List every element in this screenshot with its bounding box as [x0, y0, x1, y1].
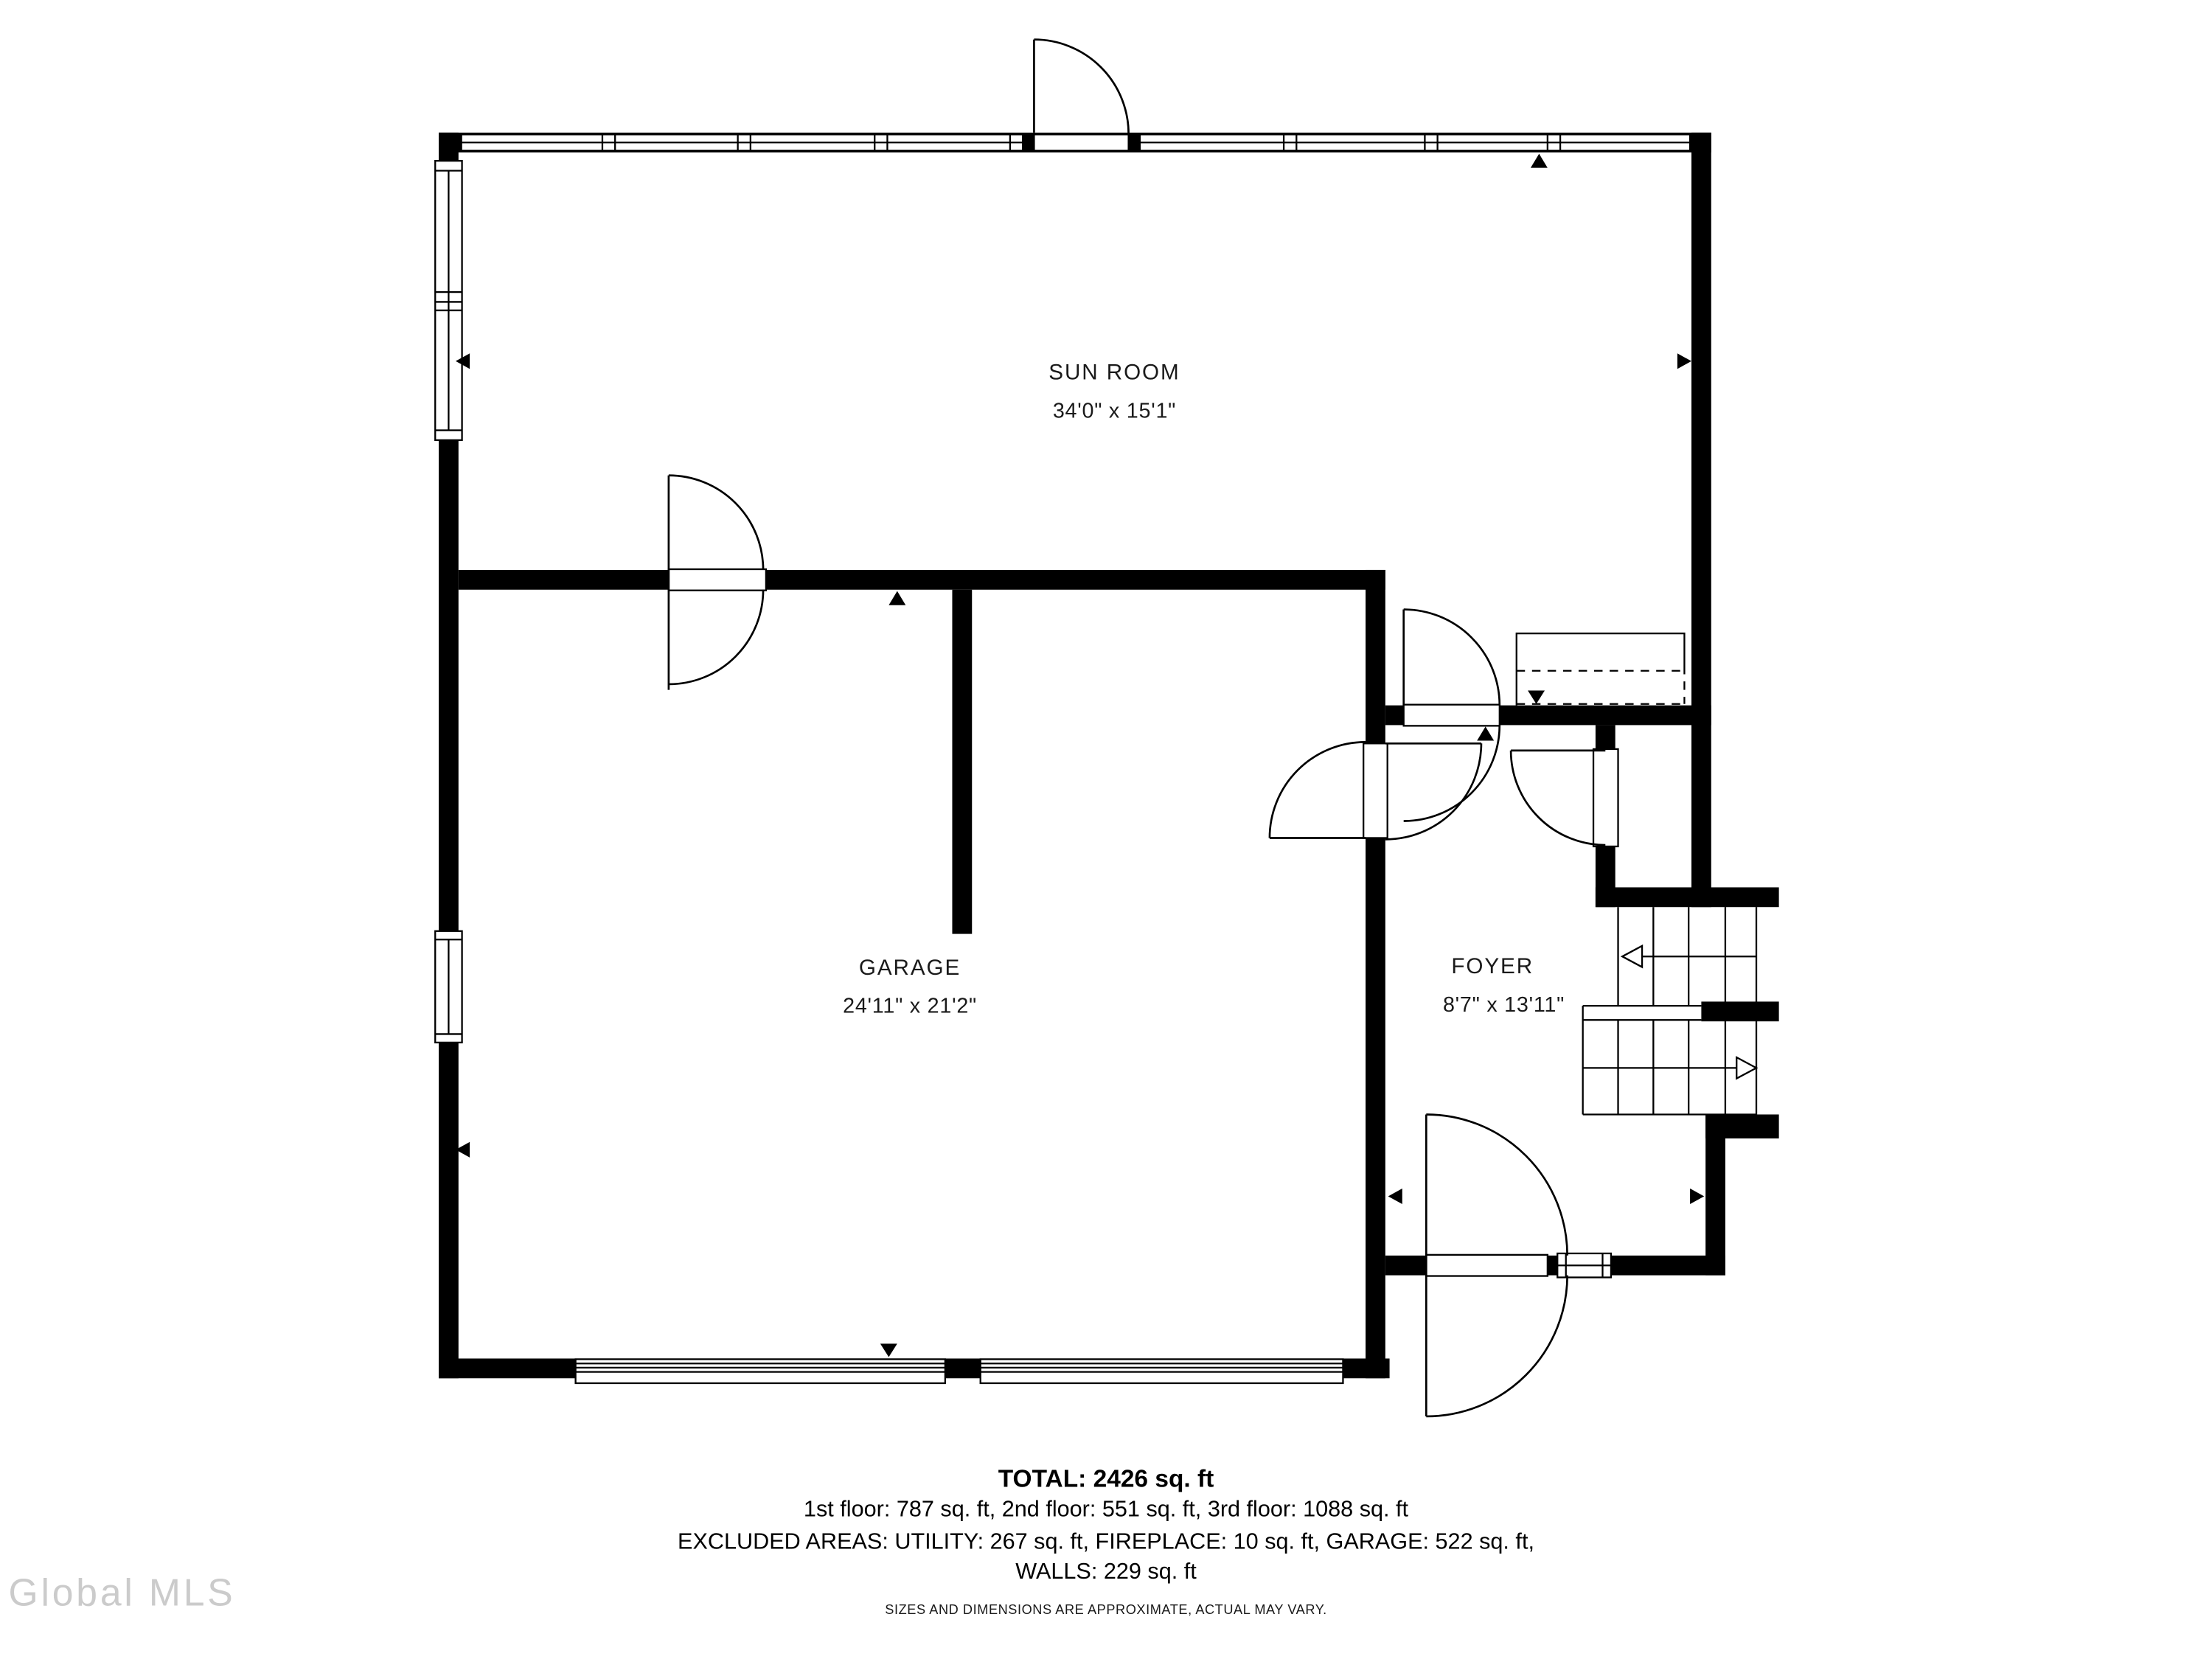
summary-walls-text: WALLS: 229 sq. ft	[1015, 1559, 1197, 1584]
wall-closet-bottom	[1596, 887, 1779, 907]
door-threshold-closet	[1593, 749, 1618, 846]
wall-foyer-right	[1705, 1114, 1725, 1275]
door-threshold-garage-foyer	[1363, 743, 1388, 838]
floor-plan-page: SUN ROOM 34'0" x 15'1" GARAGE 24'11" x 2…	[0, 0, 2212, 1659]
summary-floors-text: 1st floor: 787 sq. ft, 2nd floor: 551 sq…	[804, 1497, 1409, 1522]
garage-door-1	[576, 1359, 945, 1383]
window-band-top-right	[1140, 134, 1690, 151]
wall-sunroom-right	[1691, 133, 1711, 907]
canvas-background	[0, 0, 2212, 1659]
window-band-top-left	[462, 134, 1023, 151]
summary-total-text: TOTAL: 2426 sq. ft	[998, 1466, 1214, 1493]
summary-excluded-text: EXCLUDED AREAS: UTILITY: 267 sq. ft, FIR…	[678, 1529, 1534, 1554]
room-label-sunroom: SUN ROOM	[1048, 361, 1180, 385]
door-threshold-top	[1034, 134, 1128, 150]
door-threshold-sunroom-garage	[669, 569, 766, 591]
floor-plan-drawing: SUN ROOM 34'0" x 15'1" GARAGE 24'11" x 2…	[0, 0, 2212, 1659]
wall-garage-right	[1366, 570, 1385, 1378]
window-left-garage	[435, 931, 462, 1043]
room-dimensions-garage: 24'11" x 21'2"	[843, 995, 977, 1018]
disclaimer-text: SIZES AND DIMENSIONS ARE APPROXIMATE, AC…	[885, 1602, 1326, 1617]
wall-garage-divider	[952, 590, 972, 934]
door-threshold-foyer-top	[1404, 705, 1500, 726]
watermark-logo: Global MLS	[8, 1571, 235, 1613]
window-foyer-bottom	[1557, 1253, 1611, 1278]
window-left-sunroom	[435, 161, 462, 440]
room-label-foyer: FOYER	[1451, 954, 1534, 978]
garage-door-2	[981, 1359, 1343, 1383]
wall-sunroom-garage	[459, 570, 1385, 590]
room-dimensions-foyer: 8'7" x 13'11"	[1443, 993, 1565, 1017]
room-label-garage: GARAGE	[859, 956, 961, 980]
door-threshold-entry	[1426, 1255, 1548, 1276]
wall-stair-stub	[1701, 1001, 1778, 1021]
room-dimensions-sunroom: 34'0" x 15'1"	[1053, 399, 1176, 422]
